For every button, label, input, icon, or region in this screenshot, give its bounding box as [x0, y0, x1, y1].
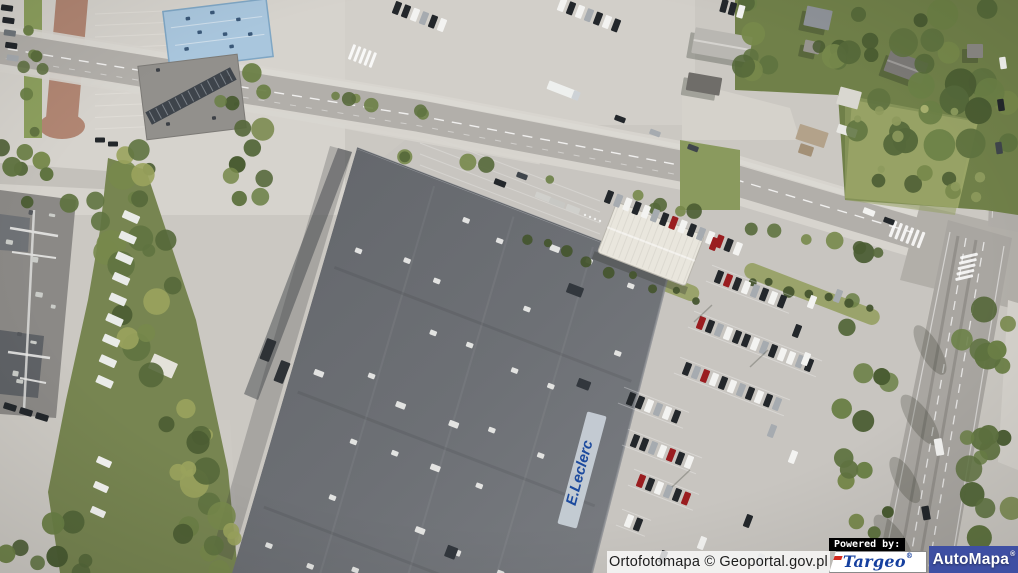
map-viewport[interactable]: E.Leclerc Ortofotomapa © Geoportal.gov.p…: [0, 0, 1018, 573]
powered-by-label: Powered by:: [829, 538, 905, 551]
automapa-logo[interactable]: AutoMapa®: [929, 546, 1018, 573]
map-attribution: Ortofotomapa © Geoportal.gov.pl: [607, 551, 830, 573]
targeo-accent-mark: [833, 556, 842, 560]
aerial-imagery[interactable]: E.Leclerc: [0, 0, 1018, 573]
attribution-text: Ortofotomapa © Geoportal.gov.pl: [609, 554, 828, 570]
photo-effects: [0, 0, 1018, 573]
registered-symbol: ®: [906, 551, 913, 560]
targeo-logo[interactable]: Targeo®: [829, 551, 927, 573]
targeo-wordmark: Targeo®: [843, 554, 913, 570]
registered-symbol: ®: [1010, 551, 1015, 558]
automapa-wordmark: AutoMapa: [933, 551, 1010, 569]
